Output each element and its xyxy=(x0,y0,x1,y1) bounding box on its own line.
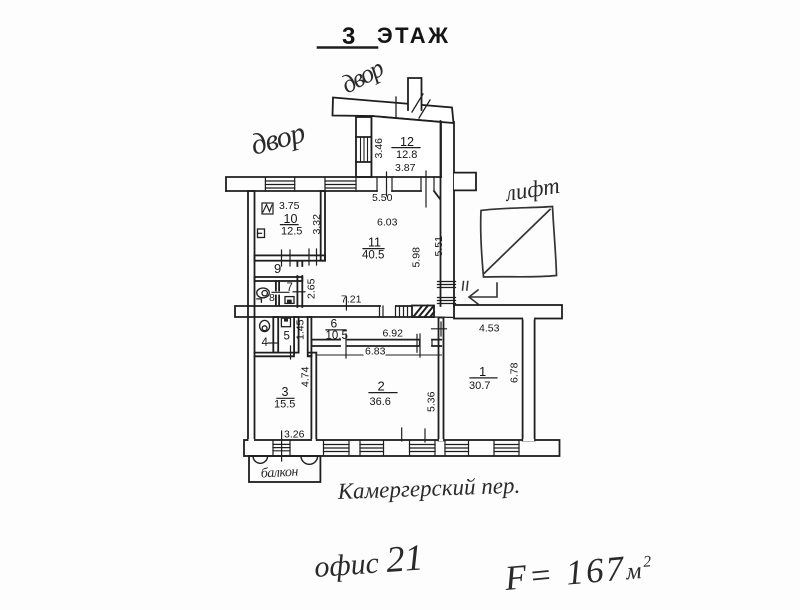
svg-text:10: 10 xyxy=(284,212,298,226)
svg-text:лифт: лифт xyxy=(502,173,561,206)
svg-text:6.92: 6.92 xyxy=(383,328,404,340)
svg-text:1.45: 1.45 xyxy=(295,319,307,340)
svg-text:12.5: 12.5 xyxy=(281,226,302,238)
svg-text:двор: двор xyxy=(247,116,308,162)
svg-text:Камергерский пер.: Камергерский пер. xyxy=(336,473,520,504)
svg-text:6: 6 xyxy=(331,317,338,331)
svg-text:балкон: балкон xyxy=(260,465,298,482)
svg-text:F= 167м2: F= 167м2 xyxy=(502,546,655,598)
svg-text:5.51: 5.51 xyxy=(433,236,445,257)
svg-text:30.7: 30.7 xyxy=(469,380,490,392)
svg-text:8: 8 xyxy=(269,292,275,304)
svg-text:4.74: 4.74 xyxy=(300,366,312,387)
svg-text:3.32: 3.32 xyxy=(311,214,323,235)
svg-text:5: 5 xyxy=(284,331,290,343)
svg-text:1: 1 xyxy=(479,364,486,379)
svg-text:2.65: 2.65 xyxy=(306,278,318,299)
svg-text:офис 21: офис 21 xyxy=(313,537,425,586)
svg-text:12: 12 xyxy=(400,135,414,149)
svg-text:11: 11 xyxy=(368,236,381,250)
svg-text:3.46: 3.46 xyxy=(373,138,385,159)
svg-text:9: 9 xyxy=(274,261,281,276)
svg-text:3: 3 xyxy=(342,23,355,50)
svg-text:6.83: 6.83 xyxy=(365,346,386,358)
svg-text:15.5: 15.5 xyxy=(274,399,295,411)
svg-text:36.6: 36.6 xyxy=(370,396,391,408)
svg-text:ЭТАЖ: ЭТАЖ xyxy=(377,23,450,48)
svg-text:двор: двор xyxy=(336,53,389,99)
svg-text:6.03: 6.03 xyxy=(377,217,398,229)
svg-text:5.36: 5.36 xyxy=(426,391,438,412)
svg-text:4.53: 4.53 xyxy=(479,323,500,335)
svg-text:5.98: 5.98 xyxy=(411,247,423,268)
svg-text:3.75: 3.75 xyxy=(279,200,300,212)
svg-text:3: 3 xyxy=(282,385,289,399)
svg-text:4: 4 xyxy=(262,337,269,349)
svg-text:12.8: 12.8 xyxy=(396,149,417,161)
svg-text:3.26: 3.26 xyxy=(284,429,305,441)
svg-text:2: 2 xyxy=(378,379,385,394)
svg-text:40.5: 40.5 xyxy=(362,250,384,262)
svg-text:6.78: 6.78 xyxy=(509,362,521,383)
svg-text:7: 7 xyxy=(287,282,293,294)
svg-text:3.87: 3.87 xyxy=(395,162,416,174)
svg-text:7.21: 7.21 xyxy=(341,294,362,306)
svg-text:5.50: 5.50 xyxy=(372,192,393,204)
